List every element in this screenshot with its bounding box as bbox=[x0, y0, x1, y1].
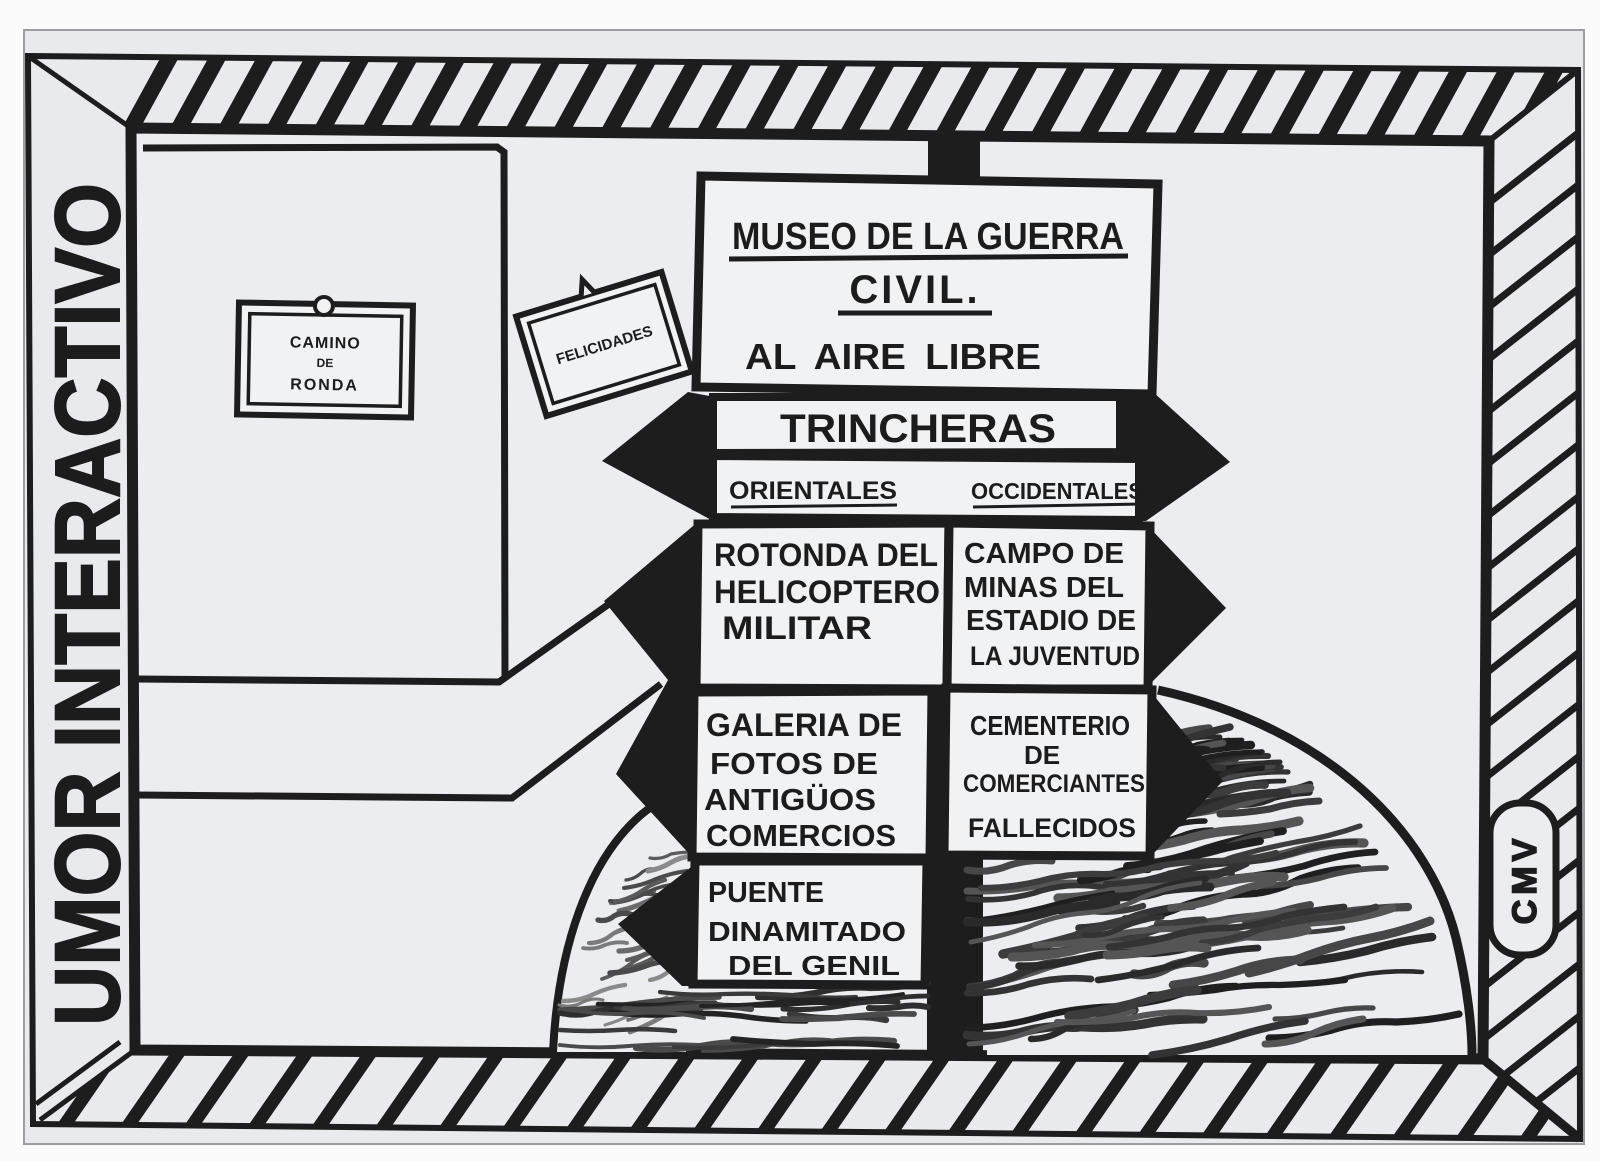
svg-text:MILITAR: MILITAR bbox=[722, 610, 872, 646]
svg-text:ANTIGÜOS: ANTIGÜOS bbox=[704, 782, 876, 817]
svg-text:CEMENTERIO: CEMENTERIO bbox=[970, 710, 1130, 741]
svg-text:TRINCHERAS: TRINCHERAS bbox=[780, 407, 1056, 451]
svg-text:GALERIA DE: GALERIA DE bbox=[706, 707, 902, 743]
svg-text:COMERCIOS: COMERCIOS bbox=[706, 818, 896, 853]
svg-text:UMOR INTERACTIVO: UMOR INTERACTIVO bbox=[37, 183, 139, 1026]
svg-text:COMERCIANTES: COMERCIANTES bbox=[963, 770, 1145, 798]
svg-text:CMV: CMV bbox=[1506, 834, 1544, 925]
svg-text:ORIENTALES: ORIENTALES bbox=[729, 477, 897, 505]
svg-text:ROTONDA DEL: ROTONDA DEL bbox=[714, 537, 938, 573]
svg-text:FALLECIDOS: FALLECIDOS bbox=[968, 813, 1136, 843]
svg-text:CIVIL.: CIVIL. bbox=[849, 268, 980, 312]
svg-text:CAMINO: CAMINO bbox=[290, 334, 361, 352]
svg-text:ESTADIO DE: ESTADIO DE bbox=[966, 605, 1136, 637]
svg-text:HELICOPTERO: HELICOPTERO bbox=[714, 574, 940, 610]
svg-text:MUSEO DE LA GUERRA: MUSEO DE LA GUERRA bbox=[732, 216, 1124, 258]
svg-text:DINAMITADO: DINAMITADO bbox=[708, 916, 906, 947]
svg-text:MINAS DEL: MINAS DEL bbox=[964, 572, 1124, 604]
svg-text:DE: DE bbox=[1024, 740, 1060, 770]
svg-text:DEL GENIL: DEL GENIL bbox=[728, 950, 900, 981]
svg-text:CAMPO DE: CAMPO DE bbox=[964, 538, 1124, 570]
svg-text:AL AIRE LIBRE: AL AIRE LIBRE bbox=[745, 336, 1041, 377]
svg-text:RONDA: RONDA bbox=[290, 376, 359, 394]
svg-text:PUENTE: PUENTE bbox=[708, 877, 824, 909]
svg-text:DE: DE bbox=[316, 356, 333, 370]
svg-text:OCCIDENTALES: OCCIDENTALES bbox=[971, 478, 1143, 504]
svg-text:LA JUVENTUD: LA JUVENTUD bbox=[970, 641, 1140, 671]
svg-text:FOTOS DE: FOTOS DE bbox=[710, 746, 878, 781]
